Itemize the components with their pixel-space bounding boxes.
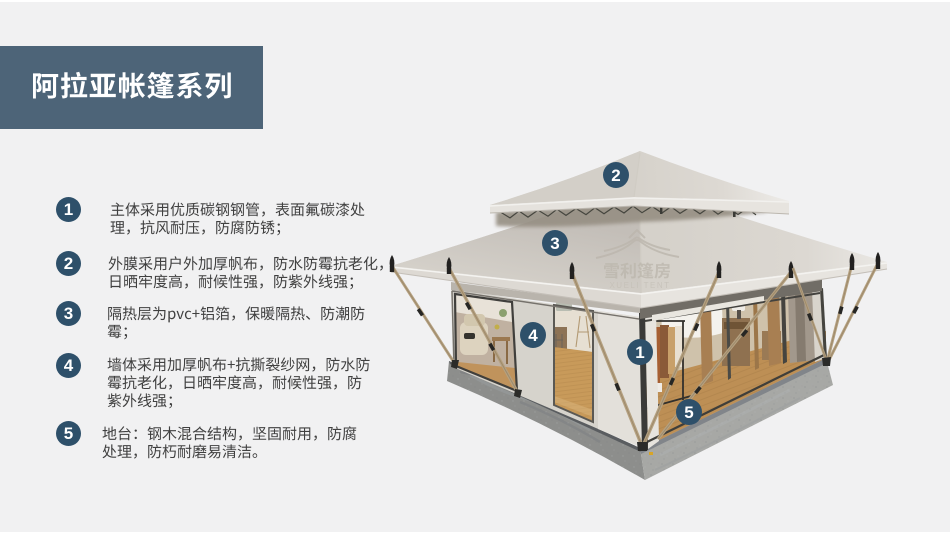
svg-text:2: 2: [611, 166, 620, 185]
svg-text:5: 5: [684, 403, 693, 422]
svg-text:3: 3: [550, 234, 559, 253]
svg-text:XUELI TENT: XUELI TENT: [609, 281, 670, 290]
svg-text:1: 1: [635, 343, 644, 362]
svg-text:4: 4: [528, 326, 538, 345]
